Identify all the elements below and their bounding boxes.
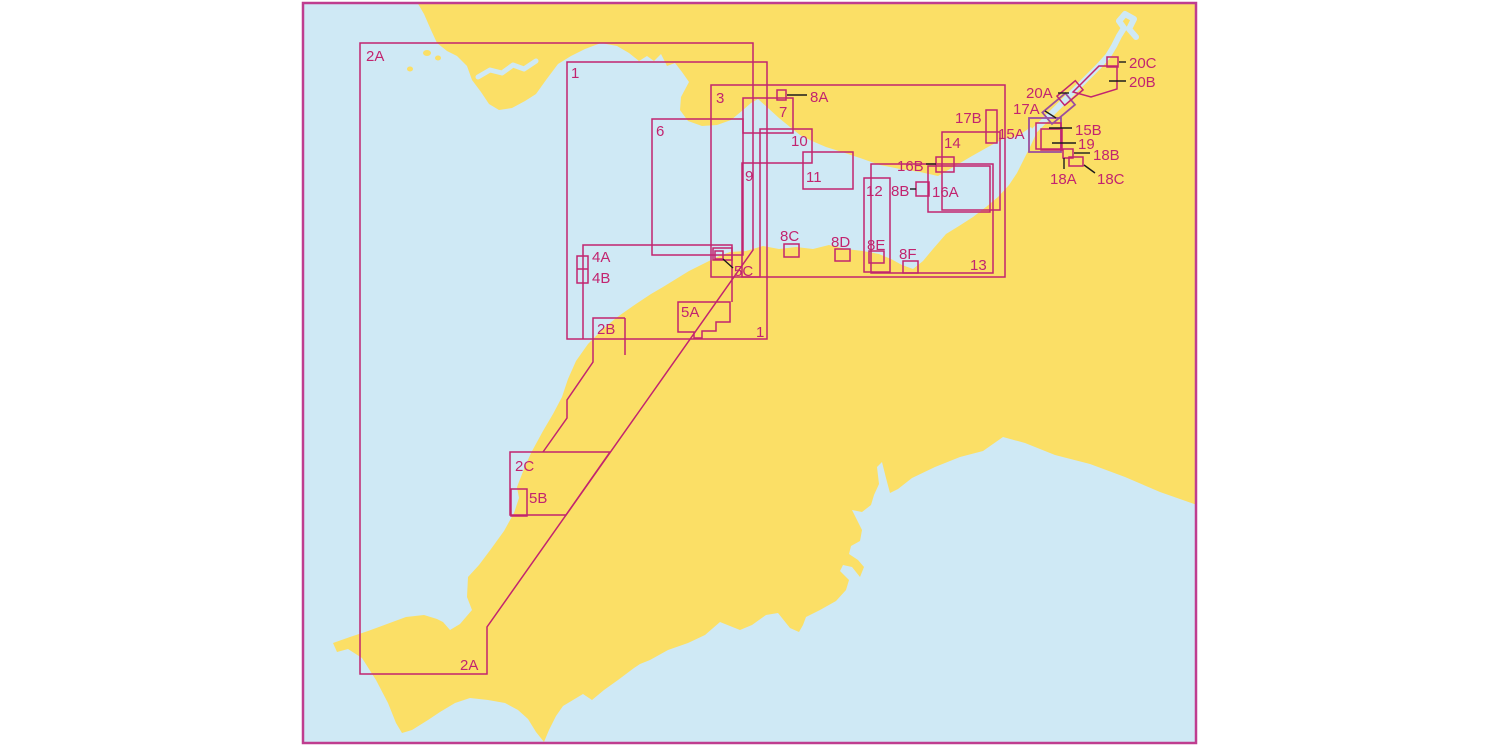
chart-label-14: 14	[944, 135, 961, 152]
chart-label-6: 6	[656, 123, 664, 140]
chart-label-2b: 2B	[597, 321, 615, 338]
chart-label-20a: 20A	[1026, 85, 1053, 102]
chart-label-5a: 5A	[681, 304, 699, 321]
chart-label-8e: 8E	[867, 237, 885, 254]
chart-label-13: 13	[970, 257, 987, 274]
chart-label-18b: 18B	[1093, 147, 1120, 164]
island	[407, 67, 413, 72]
chart-label-20c: 20C	[1129, 55, 1157, 72]
chart-label-12: 12	[866, 183, 883, 200]
chart-label-3: 3	[716, 90, 724, 107]
chart-label-8d: 8D	[831, 234, 850, 251]
chart-label-8b: 8B	[891, 183, 909, 200]
chart-label-5b: 5B	[529, 490, 547, 507]
chart-index-map: 2A 1 3 8A 7 6 10 9 11 12 8B 16A 16B 14 1…	[0, 0, 1500, 750]
chart-label-11: 11	[806, 169, 822, 186]
chart-label-17a: 17A	[1013, 101, 1040, 118]
chart-label-18c: 18C	[1097, 171, 1125, 188]
chart-label-2a-sw: 2A	[460, 657, 478, 674]
chart-label-8f: 8F	[899, 246, 917, 263]
chart-label-16a: 16A	[932, 184, 959, 201]
chart-label-15a: 15A	[998, 126, 1025, 143]
island	[423, 50, 431, 56]
chart-label-10: 10	[791, 133, 808, 150]
chart-label-7: 7	[779, 104, 787, 121]
chart-label-2a-nw: 2A	[366, 48, 384, 65]
chart-label-2c: 2C	[515, 458, 534, 475]
chart-label-9: 9	[745, 168, 753, 185]
chart-label-8a: 8A	[810, 89, 828, 106]
chart-index-page: 2A 1 3 8A 7 6 10 9 11 12 8B 16A 16B 14 1…	[0, 0, 1500, 750]
chart-label-8c: 8C	[780, 228, 799, 245]
chart-label-18a: 18A	[1050, 171, 1077, 188]
chart-label-4b: 4B	[592, 270, 610, 287]
chart-label-4a: 4A	[592, 249, 610, 266]
chart-label-17b: 17B	[955, 110, 982, 127]
island	[435, 56, 441, 61]
chart-label-1-nw: 1	[571, 65, 579, 82]
chart-label-20b: 20B	[1129, 74, 1156, 91]
chart-label-5c: 5C	[734, 263, 753, 280]
chart-label-16b: 16B	[897, 158, 924, 175]
chart-label-1-se: 1	[756, 324, 764, 341]
